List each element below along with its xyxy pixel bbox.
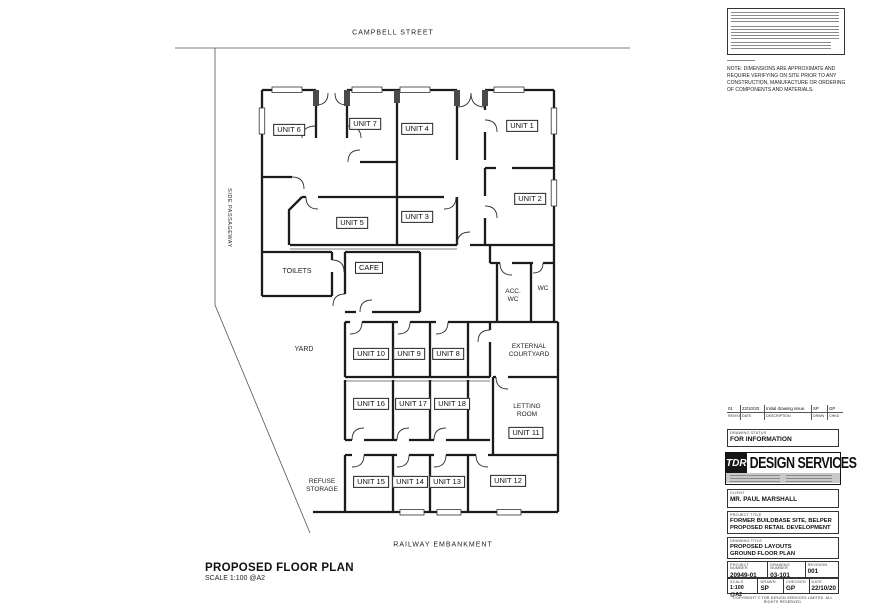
contact-fine-print [786, 475, 832, 482]
sheet-title-block: PROPOSED FLOOR PLAN SCALE 1:100 @A2 [205, 562, 354, 582]
cafe-label: CAFE [355, 262, 383, 274]
company-logo-box: TDR DESIGN SERVICES [725, 452, 841, 485]
area-label-wc: WC [538, 285, 549, 293]
unit-label: UNIT 4 [401, 123, 433, 135]
project-line2: PROPOSED RETAIL DEVELOPMENT [730, 525, 836, 532]
unit-label: UNIT 18 [434, 398, 470, 410]
drawing-numbers-row: PROJECT NUMBER 20949-01 DRAWING NUMBER 0… [727, 561, 839, 578]
area-label-refuse-storage: REFUSE STORAGE [300, 478, 344, 494]
drawn-value: SP [758, 584, 783, 593]
unit-label: UNIT 1 [506, 120, 538, 132]
checked-label: CHECKED [784, 579, 809, 584]
unit-label: UNIT 2 [514, 193, 546, 205]
revision-header: DESCRIPTION [764, 412, 811, 419]
revision-table: 01 22/10/20 Initial drawing issue. SP GP… [727, 405, 844, 420]
revision-header: DRWN [811, 412, 827, 419]
status-value: FOR INFORMATION [728, 435, 838, 445]
revision-header: REVISION [727, 412, 740, 419]
street-label-side-passageway: SIDE PASSAGEWAY [226, 188, 232, 248]
general-notes-box [727, 8, 845, 55]
street-label-campbell: CAMPBELL STREET [352, 30, 434, 37]
drawing-line2: GROUND FLOOR PLAN [730, 551, 836, 558]
fine-print-paragraph [731, 12, 839, 23]
revision-header-row: REVISION DATE DESCRIPTION DRWN CHKD [727, 412, 844, 419]
dimension-note-block: NOTE: DIMENSIONS ARE APPROXIMATE AND REQ… [727, 60, 849, 95]
unit-label: UNIT 11 [508, 427, 543, 439]
area-label-external-courtyard: EXTERNAL COURTYARD [501, 343, 557, 359]
logo-abbr: TDR [726, 453, 747, 473]
drawing-number-label: DRAWING NUMBER [768, 562, 804, 571]
unit-label: UNIT 17 [395, 398, 431, 410]
copyright-line: COPYRIGHT © TDR DESIGN SERVICES LIMITED.… [727, 596, 839, 604]
fine-print-paragraph [731, 26, 839, 39]
fine-print-paragraph [731, 42, 831, 50]
client-box: CLIENT MR. PAUL MARSHALL [727, 489, 839, 508]
drawing-sheet: { "sheet": { "title": "PROPOSED FLOOR PL… [0, 0, 869, 613]
unit-label: UNIT 13 [429, 476, 465, 488]
revision-drawn: SP [811, 405, 827, 412]
date-value: 22/10/20 [810, 584, 839, 593]
project-line1: FORMER BUILDBASE SITE, BELPER [730, 518, 836, 525]
checked-value: GP [784, 584, 809, 593]
unit-label: UNIT 14 [392, 476, 428, 488]
area-label-acc-wc: ACC. WC [499, 288, 527, 304]
revision-row: 01 22/10/20 Initial drawing issue. SP GP [727, 405, 844, 412]
unit-label: UNIT 5 [336, 217, 368, 229]
drawing-status-box: DRAWING STATUS FOR INFORMATION [727, 429, 839, 447]
unit-label: UNIT 15 [353, 476, 389, 488]
unit-label: UNIT 12 [490, 475, 526, 487]
area-label-letting-room: LETTING ROOM [504, 403, 550, 419]
revision-rev: 01 [727, 405, 740, 412]
dimension-note: NOTE: DIMENSIONS ARE APPROXIMATE AND REQ… [727, 66, 849, 95]
sheet-title: PROPOSED FLOOR PLAN [205, 562, 354, 574]
contact-fine-print [730, 475, 780, 482]
client-value: MR. PAUL MARSHALL [728, 495, 838, 504]
unit-label: UNIT 16 [353, 398, 389, 410]
logo-name: DESIGN SERVICES [747, 451, 857, 476]
scale-row: SCALE 1:100 @A2 DRAWN SP CHECKED GP DATE… [727, 578, 839, 594]
revision-header: DATE [740, 412, 764, 419]
revision-date: 22/10/20 [740, 405, 764, 412]
project-number-label: PROJECT NUMBER [728, 562, 767, 571]
area-label-toilets: TOILETS [282, 268, 311, 276]
street-label-railway: RAILWAY EMBANKMENT [393, 542, 492, 549]
unit-label: UNIT 8 [432, 348, 464, 360]
revision-description: Initial drawing issue. [764, 405, 811, 412]
revision-header: CHKD [827, 412, 843, 419]
unit-label: UNIT 7 [349, 118, 381, 130]
drawing-line1: PROPOSED LAYOUTS [730, 544, 836, 551]
drawing-title-box: DRAWING TITLE PROPOSED LAYOUTS GROUND FL… [727, 537, 839, 559]
revision-checked: GP [827, 405, 843, 412]
unit-label: UNIT 9 [393, 348, 425, 360]
unit-label: UNIT 10 [353, 348, 389, 360]
unit-label: UNIT 3 [401, 211, 433, 223]
revision-value: 001 [806, 567, 838, 576]
sheet-scale: SCALE 1:100 @A2 [205, 575, 354, 582]
unit-label: UNIT 6 [273, 124, 305, 136]
area-label-yard: YARD [295, 346, 314, 354]
project-title-box: PROJECT TITLE FORMER BUILDBASE SITE, BEL… [727, 511, 839, 534]
note-heading [727, 60, 755, 63]
